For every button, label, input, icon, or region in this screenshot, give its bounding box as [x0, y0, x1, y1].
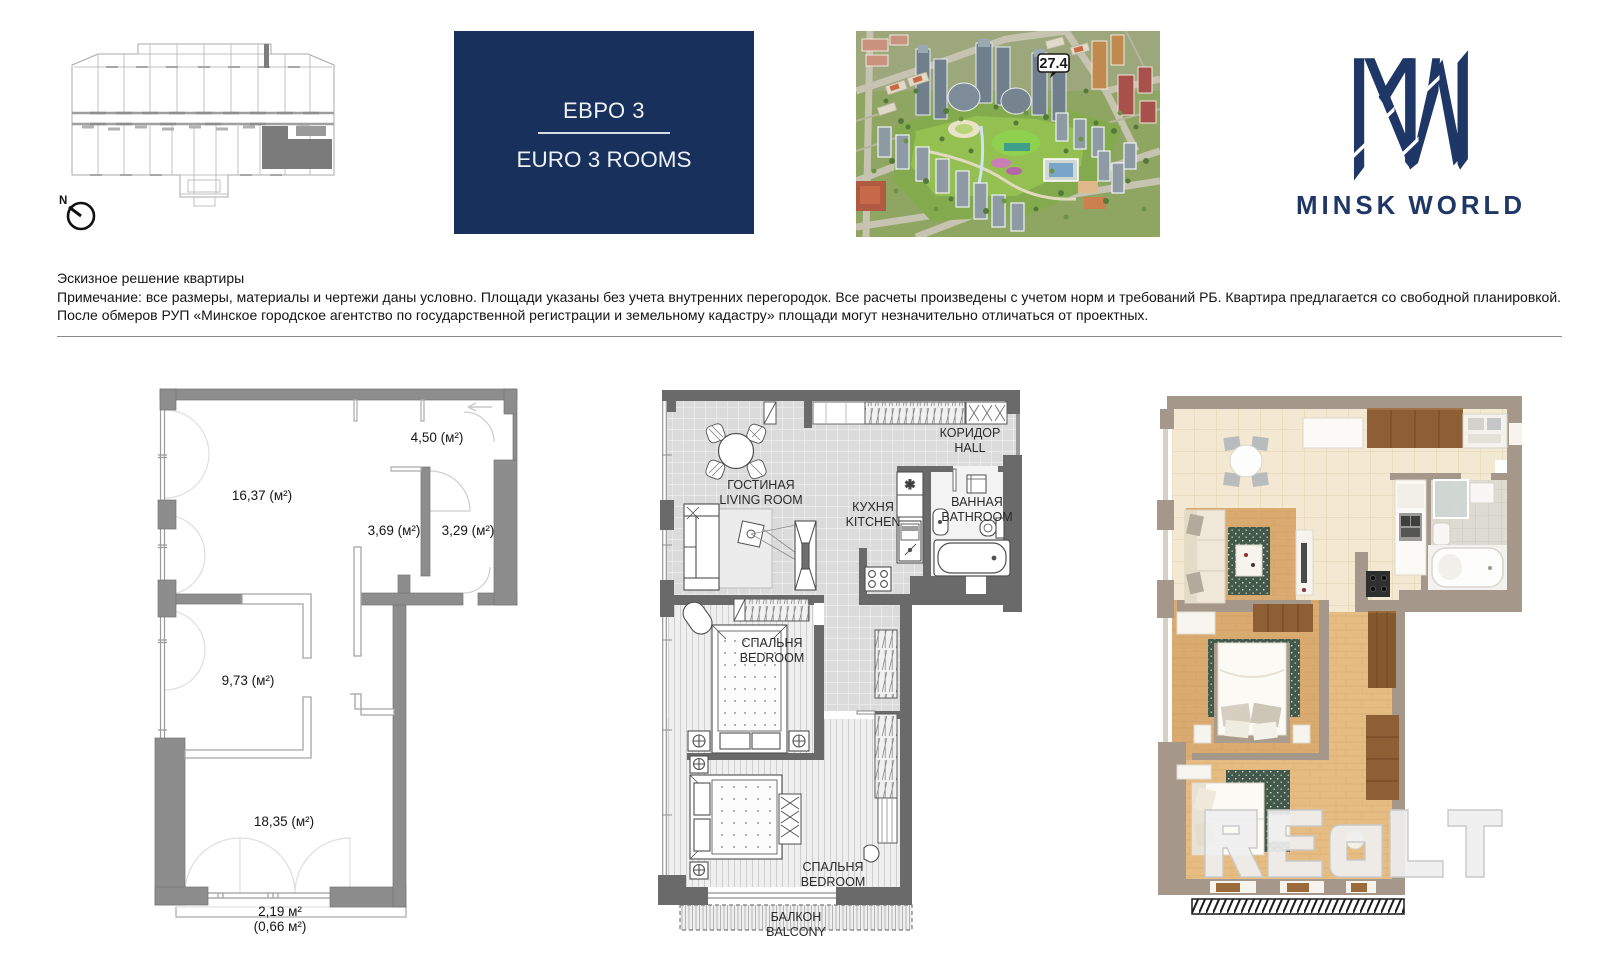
svg-text:MINSK WORLD: MINSK WORLD — [1296, 190, 1526, 220]
svg-text:2,19 м²: 2,19 м² — [258, 904, 302, 919]
svg-text:18,35 (м²): 18,35 (м²) — [254, 814, 314, 829]
svg-text:(0,66 м²): (0,66 м²) — [254, 919, 307, 934]
svg-text:БАЛКОН: БАЛКОН — [771, 910, 822, 924]
svg-text:СПАЛЬНЯ: СПАЛЬНЯ — [741, 636, 802, 650]
svg-text:27.4: 27.4 — [1039, 56, 1067, 72]
svg-text:BEDROOM: BEDROOM — [740, 651, 805, 665]
svg-text:KITCHEN: KITCHEN — [846, 515, 901, 529]
svg-text:BEDROOM: BEDROOM — [801, 875, 866, 889]
svg-text:СПАЛЬНЯ: СПАЛЬНЯ — [802, 860, 863, 874]
svg-text:BALCONY: BALCONY — [766, 925, 826, 939]
svg-text:КУХНЯ: КУХНЯ — [852, 500, 894, 514]
svg-text:9,73 (м²): 9,73 (м²) — [222, 673, 275, 688]
svg-text:LIVING ROOM: LIVING ROOM — [719, 493, 802, 507]
svg-text:ВАННАЯ: ВАННАЯ — [951, 495, 1003, 509]
svg-text:3,29 (м²): 3,29 (м²) — [442, 523, 495, 538]
svg-text:3,69 (м²): 3,69 (м²) — [368, 523, 421, 538]
svg-text:N: N — [59, 195, 67, 207]
svg-text:ГОСТИНАЯ: ГОСТИНАЯ — [727, 478, 794, 492]
svg-text:BATHROOM: BATHROOM — [941, 510, 1012, 524]
svg-text:HALL: HALL — [954, 441, 985, 455]
svg-text:4,50 (м²): 4,50 (м²) — [411, 430, 464, 445]
svg-text:16,37 (м²): 16,37 (м²) — [232, 488, 292, 503]
svg-text:✱: ✱ — [905, 477, 916, 492]
svg-text:КОРИДОР: КОРИДОР — [940, 426, 1001, 440]
